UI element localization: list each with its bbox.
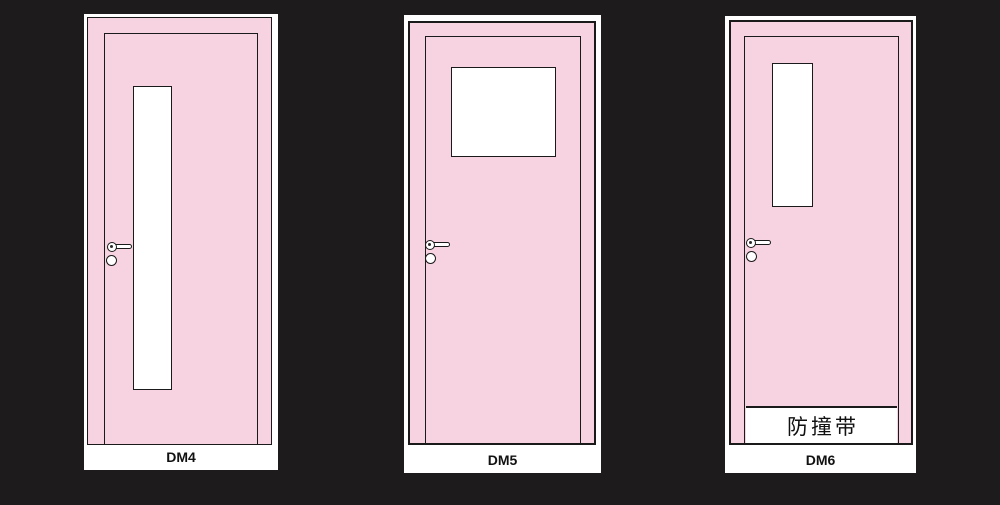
handle-rose-icon: [746, 238, 756, 248]
door-card-dm4: DM4: [84, 14, 278, 470]
handle-rose-icon: [107, 242, 117, 252]
glass-panel-square: [451, 67, 556, 157]
handle-rose-icon: [425, 240, 435, 250]
anti-collision-band: 防撞带: [746, 406, 897, 445]
door-label: DM4: [84, 447, 278, 467]
glass-panel-vertical: [133, 86, 172, 390]
door-card-dm5: DM5: [404, 15, 601, 473]
lock-cylinder-icon: [106, 255, 117, 266]
glass-panel-narrow: [772, 63, 813, 207]
lock-cylinder-icon: [746, 251, 757, 262]
lock-cylinder-icon: [425, 253, 436, 264]
door-card-dm6: 防撞带 DM6: [725, 16, 916, 473]
door-diagram-page: { "page": { "background_color": "#1d1b1b…: [0, 0, 1000, 505]
door-leaf: [104, 33, 258, 445]
door-label: DM6: [725, 450, 916, 470]
door-label: DM5: [404, 450, 601, 470]
